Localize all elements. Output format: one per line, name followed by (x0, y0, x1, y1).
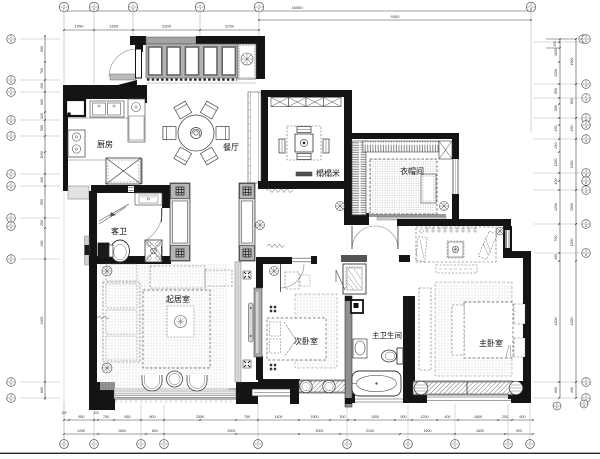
svg-text:1500: 1500 (311, 415, 319, 419)
svg-text:2250: 2250 (225, 24, 235, 29)
svg-text:100: 100 (61, 411, 67, 415)
svg-text:300: 300 (340, 415, 346, 419)
svg-text:200: 200 (40, 220, 44, 226)
svg-text:e: e (10, 259, 12, 263)
svg-text:e: e (10, 226, 12, 230)
svg-text:e: e (10, 174, 12, 178)
svg-text:d: d (585, 84, 587, 88)
svg-text:500: 500 (401, 415, 407, 419)
svg-text:1: 1 (93, 3, 95, 7)
svg-text:1: 1 (258, 3, 260, 7)
svg-text:e: e (10, 80, 12, 84)
svg-text:240: 240 (554, 143, 558, 149)
svg-text:400: 400 (570, 387, 574, 393)
svg-text:1500: 1500 (570, 203, 574, 211)
svg-text:主卧室: 主卧室 (479, 338, 503, 348)
svg-text:榻榻米: 榻榻米 (316, 168, 340, 178)
svg-text:100: 100 (93, 411, 99, 415)
svg-text:800: 800 (570, 98, 574, 104)
svg-text:1400: 1400 (275, 415, 283, 419)
svg-text:d: d (585, 382, 587, 386)
svg-text:400: 400 (40, 83, 44, 89)
svg-text:1150: 1150 (40, 151, 44, 159)
svg-text:320: 320 (40, 113, 44, 119)
svg-text:900: 900 (516, 429, 522, 433)
svg-text:2300: 2300 (162, 24, 172, 29)
svg-text:450: 450 (554, 126, 558, 132)
svg-text:400: 400 (40, 177, 44, 183)
svg-text:1350: 1350 (570, 161, 574, 169)
svg-text:1800: 1800 (476, 429, 484, 433)
svg-text:850: 850 (125, 415, 131, 419)
svg-text:d: d (585, 190, 587, 194)
svg-text:起居室: 起居室 (166, 294, 190, 304)
svg-text:1600: 1600 (118, 429, 126, 433)
svg-text:e: e (10, 92, 12, 96)
svg-text:600: 600 (554, 387, 558, 393)
svg-text:200: 200 (502, 415, 508, 419)
svg-text:4200: 4200 (554, 318, 558, 326)
svg-text:1500: 1500 (570, 58, 574, 66)
svg-text:400: 400 (554, 254, 558, 260)
svg-text:700: 700 (40, 68, 44, 74)
svg-text:1: 1 (199, 3, 201, 7)
svg-text:d: d (585, 139, 587, 143)
svg-text:d: d (585, 181, 587, 185)
svg-text:e: e (10, 39, 12, 43)
svg-text:2: 2 (530, 3, 532, 7)
svg-text:750: 750 (103, 415, 109, 419)
svg-text:750: 750 (244, 415, 250, 419)
svg-text:300: 300 (553, 41, 557, 47)
svg-text:d: d (585, 253, 587, 257)
svg-text:1000: 1000 (554, 48, 558, 56)
svg-text:1800: 1800 (474, 415, 482, 419)
svg-text:400: 400 (554, 179, 558, 185)
svg-text:1: 1 (132, 3, 134, 7)
svg-text:e: e (10, 398, 12, 402)
svg-text:d: d (585, 39, 587, 43)
svg-text:600: 600 (40, 99, 44, 105)
svg-text:次卧室: 次卧室 (294, 336, 318, 346)
svg-text:2550: 2550 (196, 415, 204, 419)
svg-text:560: 560 (554, 105, 558, 111)
svg-text:B: B (530, 8, 532, 12)
svg-text:e: e (10, 136, 12, 140)
svg-text:450: 450 (570, 126, 574, 132)
svg-text:2130: 2130 (366, 429, 374, 433)
svg-text:600: 600 (40, 387, 44, 393)
svg-text:餐厅: 餐厅 (223, 143, 239, 152)
svg-text:600: 600 (520, 415, 526, 419)
svg-text:e: e (10, 120, 12, 124)
svg-text:450: 450 (40, 241, 44, 247)
svg-text:d: d (585, 224, 587, 228)
svg-text:1600: 1600 (424, 429, 432, 433)
svg-text:800: 800 (152, 429, 158, 433)
svg-text:1: 1 (63, 3, 65, 7)
svg-text:4300: 4300 (40, 317, 44, 325)
svg-text:9300: 9300 (391, 14, 401, 19)
svg-text:950: 950 (40, 199, 44, 205)
svg-text:d: d (585, 98, 587, 102)
svg-text:500: 500 (554, 88, 558, 94)
svg-text:850: 850 (79, 415, 85, 419)
svg-text:F: F (63, 8, 65, 12)
svg-text:1050: 1050 (75, 24, 85, 29)
svg-text:e: e (10, 382, 12, 386)
svg-text:d: d (585, 125, 587, 129)
svg-text:16050: 16050 (291, 5, 303, 10)
svg-text:800: 800 (40, 46, 44, 52)
svg-text:衣帽间: 衣帽间 (400, 166, 424, 176)
svg-text:1250: 1250 (77, 429, 85, 433)
svg-text:主卫生间: 主卫生间 (372, 330, 402, 340)
svg-text:1350: 1350 (554, 159, 558, 167)
svg-text:400: 400 (445, 415, 451, 419)
svg-text:1200: 1200 (421, 415, 429, 419)
svg-text:700: 700 (554, 236, 558, 242)
svg-text:a: a (583, 404, 585, 408)
svg-text:客卫: 客卫 (111, 226, 127, 236)
svg-text:5300: 5300 (228, 429, 236, 433)
svg-text:3000: 3000 (316, 429, 324, 433)
svg-text:4250: 4250 (570, 318, 574, 326)
svg-text:厨房: 厨房 (97, 139, 113, 149)
svg-text:500: 500 (40, 125, 44, 131)
svg-text:1350: 1350 (109, 24, 119, 29)
svg-text:b: b (556, 406, 558, 410)
svg-text:1200: 1200 (554, 69, 558, 77)
svg-text:e: e (10, 186, 12, 190)
svg-text:1200: 1200 (554, 203, 558, 211)
svg-text:800: 800 (150, 415, 156, 419)
svg-text:1500: 1500 (371, 415, 379, 419)
svg-text:1300: 1300 (570, 239, 574, 247)
